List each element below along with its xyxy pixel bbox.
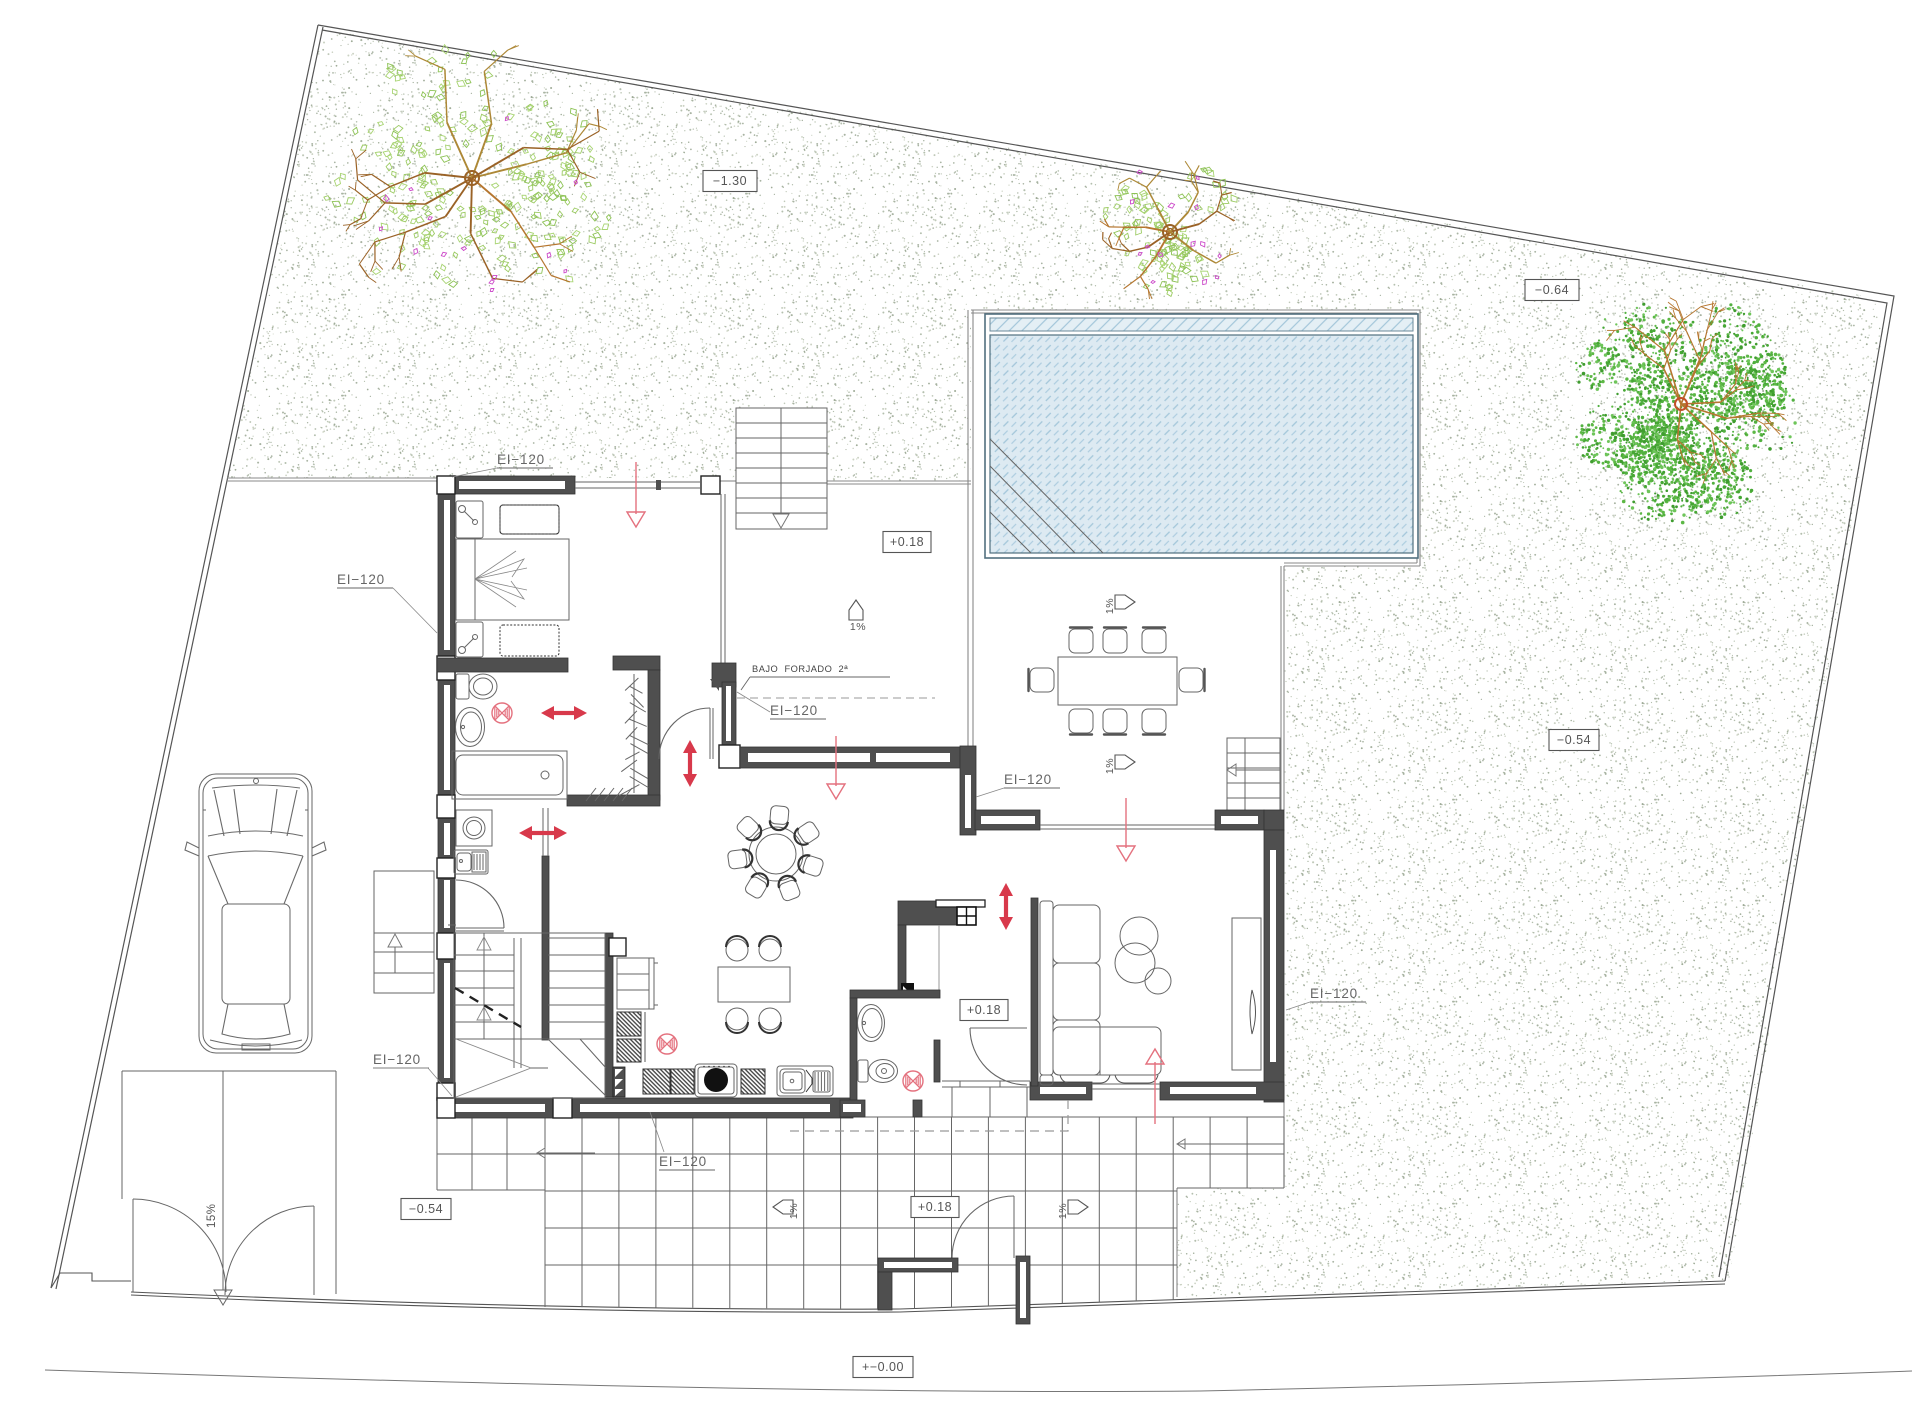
svg-text:+0.18: +0.18 <box>918 1200 952 1214</box>
svg-text:−1.30: −1.30 <box>713 174 747 188</box>
svg-text:−0.54: −0.54 <box>409 1202 443 1216</box>
svg-text:+0.18: +0.18 <box>967 1003 1001 1017</box>
svg-text:EI−120: EI−120 <box>1004 772 1052 787</box>
svg-text:EI−120: EI−120 <box>770 703 818 718</box>
svg-text:15%: 15% <box>206 1203 218 1228</box>
svg-text:+0.18: +0.18 <box>890 535 924 549</box>
svg-text:1%: 1% <box>1057 1203 1069 1219</box>
svg-text:1%: 1% <box>788 1203 800 1219</box>
svg-text:BAJO FORJADO 2ª: BAJO FORJADO 2ª <box>752 664 848 674</box>
svg-text:−0.64: −0.64 <box>1535 283 1569 297</box>
svg-text:1%: 1% <box>1104 598 1116 614</box>
svg-text:EI−120: EI−120 <box>659 1154 707 1169</box>
svg-text:EI−120: EI−120 <box>373 1052 421 1067</box>
svg-text:EI−120: EI−120 <box>497 452 545 467</box>
svg-text:+−0.00: +−0.00 <box>862 1360 904 1374</box>
svg-text:1%: 1% <box>1104 758 1116 774</box>
svg-text:EI−120: EI−120 <box>1310 986 1358 1001</box>
svg-text:1%: 1% <box>850 621 866 633</box>
svg-text:−0.54: −0.54 <box>1557 733 1591 747</box>
svg-text:EI−120: EI−120 <box>337 572 385 587</box>
